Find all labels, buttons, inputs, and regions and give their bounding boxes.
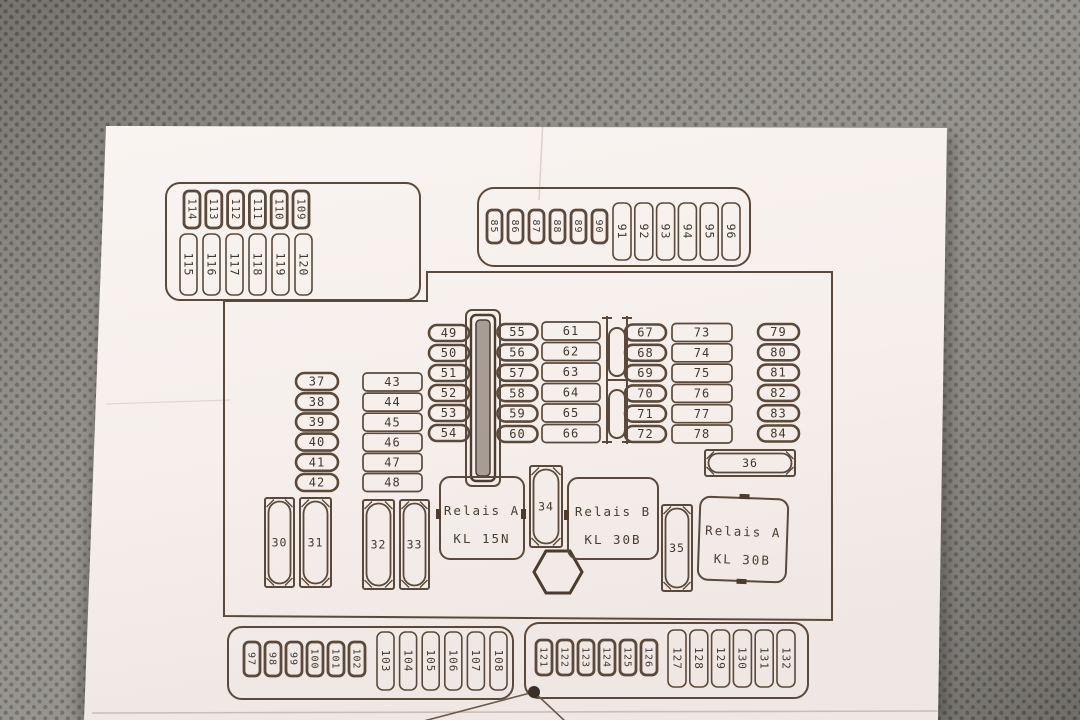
fuse-44-label: 44	[384, 395, 400, 409]
fuse-65-label: 65	[563, 406, 579, 420]
fuse-128-label: 128	[692, 647, 705, 670]
fuse-123-label: 123	[580, 647, 591, 668]
fuse-87-label: 87	[530, 219, 541, 233]
fuse-66-label: 66	[563, 427, 579, 441]
fuse-132-label: 132	[779, 647, 792, 670]
fuse-94-label: 94	[680, 224, 694, 240]
fuse-115-label: 115	[182, 253, 196, 277]
fuse-99-label: 99	[288, 652, 299, 666]
fuse-34-label: 34	[538, 500, 554, 514]
relay-b-30b-label1: Relais B	[575, 504, 651, 519]
fuse-61-label: 61	[563, 324, 579, 338]
fuse-92-label: 92	[637, 224, 651, 240]
fuse-125-label: 125	[622, 647, 633, 668]
fuse-74-label: 74	[694, 346, 710, 360]
fuse-97-label: 97	[246, 652, 257, 666]
fuse-89-label: 89	[572, 219, 583, 233]
fuse-108-label: 108	[492, 650, 505, 673]
fuse-104-label: 104	[401, 650, 414, 673]
fuse-75-label: 75	[694, 366, 710, 380]
fuse-127-label: 127	[670, 647, 683, 670]
fuse-101-label: 101	[330, 648, 341, 669]
fuse-84-label: 84	[770, 427, 786, 441]
fuse-70-label: 70	[637, 386, 653, 400]
relay-a-15n-label2: KL 15N	[453, 531, 510, 546]
fuse-48-label: 48	[384, 476, 400, 490]
fuse-80-label: 80	[770, 345, 786, 359]
fuse-69-label: 69	[637, 366, 653, 380]
fuse-124-label: 124	[601, 647, 612, 668]
fuse-58-label: 58	[509, 386, 525, 400]
fuse-64-label: 64	[563, 386, 579, 400]
fuse-59-label: 59	[509, 407, 525, 421]
fuse-81-label: 81	[770, 366, 786, 380]
relay-b-30b-label2: KL 30B	[584, 532, 641, 547]
fuse-88-label: 88	[551, 219, 562, 233]
fuse-121-label: 121	[538, 647, 549, 668]
fuse-63-label: 63	[563, 365, 579, 379]
fuse-52-label: 52	[441, 386, 457, 400]
fuse-96-label: 96	[724, 224, 738, 240]
fuse-38-label: 38	[309, 395, 325, 409]
fuse-53-label: 53	[441, 406, 457, 420]
fuse-110-label: 110	[273, 199, 285, 221]
relay-a-30b-label1: Relais A	[705, 523, 782, 541]
fuse-93-label: 93	[659, 224, 673, 240]
fuse-119-label: 119	[274, 253, 288, 277]
fuse-129-label: 129	[714, 647, 727, 670]
fuse-86-label: 86	[509, 219, 520, 233]
corner-dot	[528, 686, 540, 698]
fuse-112-label: 112	[229, 199, 241, 221]
busbar-strip	[466, 310, 500, 486]
fuse-118-label: 118	[251, 253, 265, 277]
fuse-79-label: 79	[770, 325, 786, 339]
fuse-50-label: 50	[441, 346, 457, 360]
relay-a-30b-label2: KL 30B	[713, 551, 771, 568]
fuse-55-label: 55	[509, 325, 525, 339]
fuse-120-label: 120	[297, 253, 311, 277]
fuse-68-label: 68	[637, 346, 653, 360]
fuse-30-label: 30	[272, 536, 288, 550]
fuse-100-label: 100	[309, 648, 320, 669]
fuse-46-label: 46	[384, 435, 400, 449]
fuse-114-label: 114	[185, 199, 197, 221]
fuse-77-label: 77	[694, 407, 710, 421]
fuse-71-label: 71	[637, 407, 653, 421]
fuse-36-label: 36	[742, 456, 758, 470]
fuse-35-label: 35	[669, 541, 685, 555]
fuse-67-label: 67	[637, 326, 653, 340]
fuse-85-label: 85	[488, 219, 499, 233]
fuse-57-label: 57	[509, 366, 525, 380]
fuse-62-label: 62	[563, 345, 579, 359]
fuse-54-label: 54	[441, 426, 457, 440]
fuse-107-label: 107	[469, 650, 482, 673]
fuse-98-label: 98	[267, 652, 278, 666]
relay-a-15n-label1: Relais A	[444, 503, 520, 518]
fuse-116-label: 116	[205, 253, 219, 277]
fuse-49-label: 49	[441, 326, 457, 340]
fuse-73-label: 73	[694, 326, 710, 340]
fuse-91-label: 91	[615, 224, 629, 240]
fuse-106-label: 106	[447, 650, 460, 673]
fusebox-diagram-photo: Relais A KL 15N Relais B KL 30B Relais A…	[0, 0, 1080, 720]
fuse-39-label: 39	[309, 415, 325, 429]
fuse-72-label: 72	[637, 427, 653, 441]
fuse-40-label: 40	[309, 435, 325, 449]
fuse-60-label: 60	[509, 427, 525, 441]
fuse-130-label: 130	[736, 647, 749, 670]
fuse-33-label: 33	[407, 538, 423, 552]
fuse-117-label: 117	[228, 253, 242, 277]
fuse-122-label: 122	[559, 647, 570, 668]
fuse-131-label: 131	[757, 647, 770, 670]
fuse-42-label: 42	[309, 476, 325, 490]
fuse-105-label: 105	[424, 650, 437, 673]
fuse-102-label: 102	[351, 648, 362, 669]
fuse-83-label: 83	[770, 406, 786, 420]
fuse-103-label: 103	[379, 650, 392, 673]
fuse-111-label: 111	[251, 199, 263, 221]
fuse-82-label: 82	[770, 386, 786, 400]
fuse-56-label: 56	[509, 345, 525, 359]
fuse-41-label: 41	[309, 455, 325, 469]
fuse-37-label: 37	[309, 375, 325, 389]
fuse-113-label: 113	[207, 199, 219, 221]
fuse-76-label: 76	[694, 386, 710, 400]
fuse-126-label: 126	[643, 647, 654, 668]
fuse-90-label: 90	[593, 219, 604, 233]
fuse-45-label: 45	[384, 415, 400, 429]
fuse-43-label: 43	[384, 375, 400, 389]
fuse-109-label: 109	[294, 199, 306, 221]
fuse-78-label: 78	[694, 427, 710, 441]
fuse-95-label: 95	[702, 224, 716, 240]
fuse-47-label: 47	[384, 455, 400, 469]
fuse-32-label: 32	[371, 538, 387, 552]
fuse-51-label: 51	[441, 366, 457, 380]
fuse-31-label: 31	[308, 536, 324, 550]
